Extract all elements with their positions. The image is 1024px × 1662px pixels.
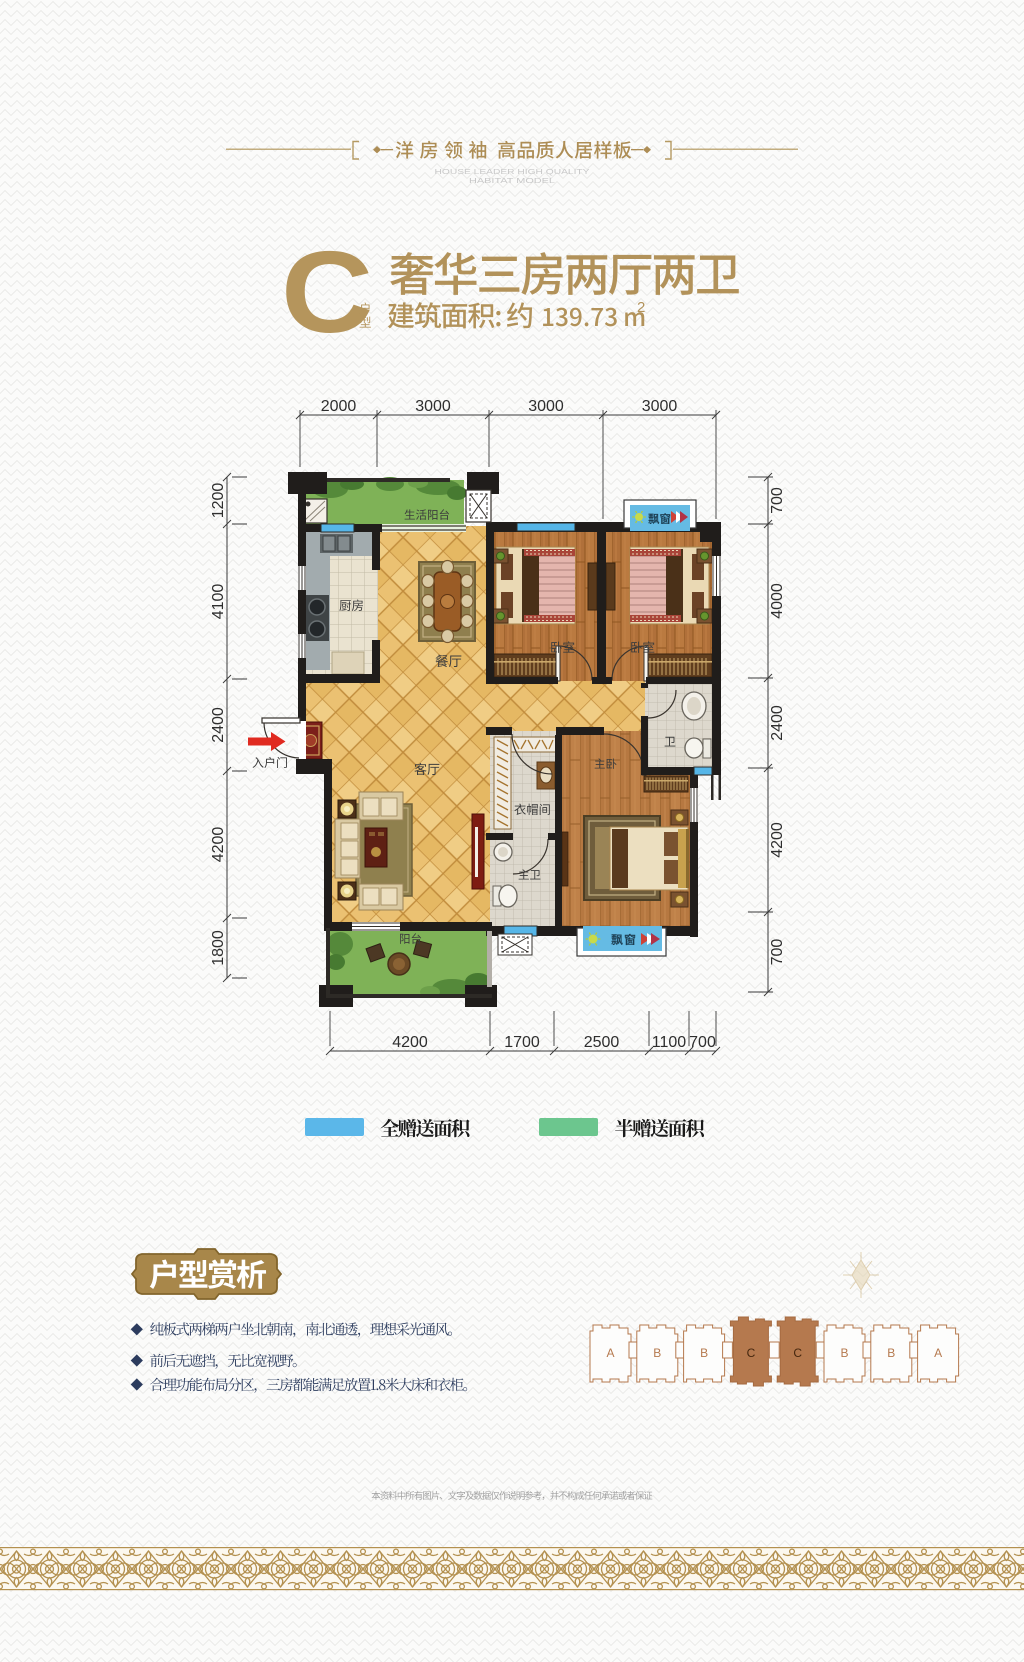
svg-text:4200: 4200 [210, 827, 227, 863]
svg-text:2000: 2000 [321, 398, 357, 415]
svg-text:C: C [747, 1346, 756, 1360]
svg-text:1800: 1800 [210, 930, 227, 966]
svg-text:B: B [840, 1346, 848, 1360]
svg-text:700: 700 [689, 1034, 716, 1051]
svg-text:1700: 1700 [504, 1034, 540, 1051]
svg-text:700: 700 [769, 487, 786, 514]
svg-text:4000: 4000 [769, 583, 786, 619]
svg-text:2500: 2500 [584, 1034, 620, 1051]
svg-text:B: B [887, 1346, 895, 1360]
svg-text:3000: 3000 [642, 398, 678, 415]
svg-text:2400: 2400 [769, 705, 786, 741]
svg-text:1200: 1200 [210, 483, 227, 519]
svg-text:2: 2 [637, 299, 645, 316]
svg-text:C: C [793, 1346, 802, 1360]
svg-text:HABITAT MODEL: HABITAT MODEL [469, 178, 555, 185]
svg-text:A: A [934, 1346, 942, 1360]
svg-text:A: A [606, 1346, 614, 1360]
svg-text:700: 700 [769, 939, 786, 966]
svg-text:4200: 4200 [392, 1034, 428, 1051]
svg-text:C: C [281, 227, 373, 356]
svg-text:B: B [700, 1346, 708, 1360]
svg-text:1100: 1100 [652, 1034, 687, 1051]
svg-text:B: B [653, 1346, 661, 1360]
svg-text:2400: 2400 [210, 707, 227, 743]
svg-text:3000: 3000 [528, 398, 564, 415]
svg-text:HOUSE LEADER HIGH QUALITY: HOUSE LEADER HIGH QUALITY [435, 169, 590, 176]
svg-text:4200: 4200 [769, 822, 786, 858]
svg-text:3000: 3000 [415, 398, 451, 415]
svg-text:4100: 4100 [210, 584, 227, 620]
